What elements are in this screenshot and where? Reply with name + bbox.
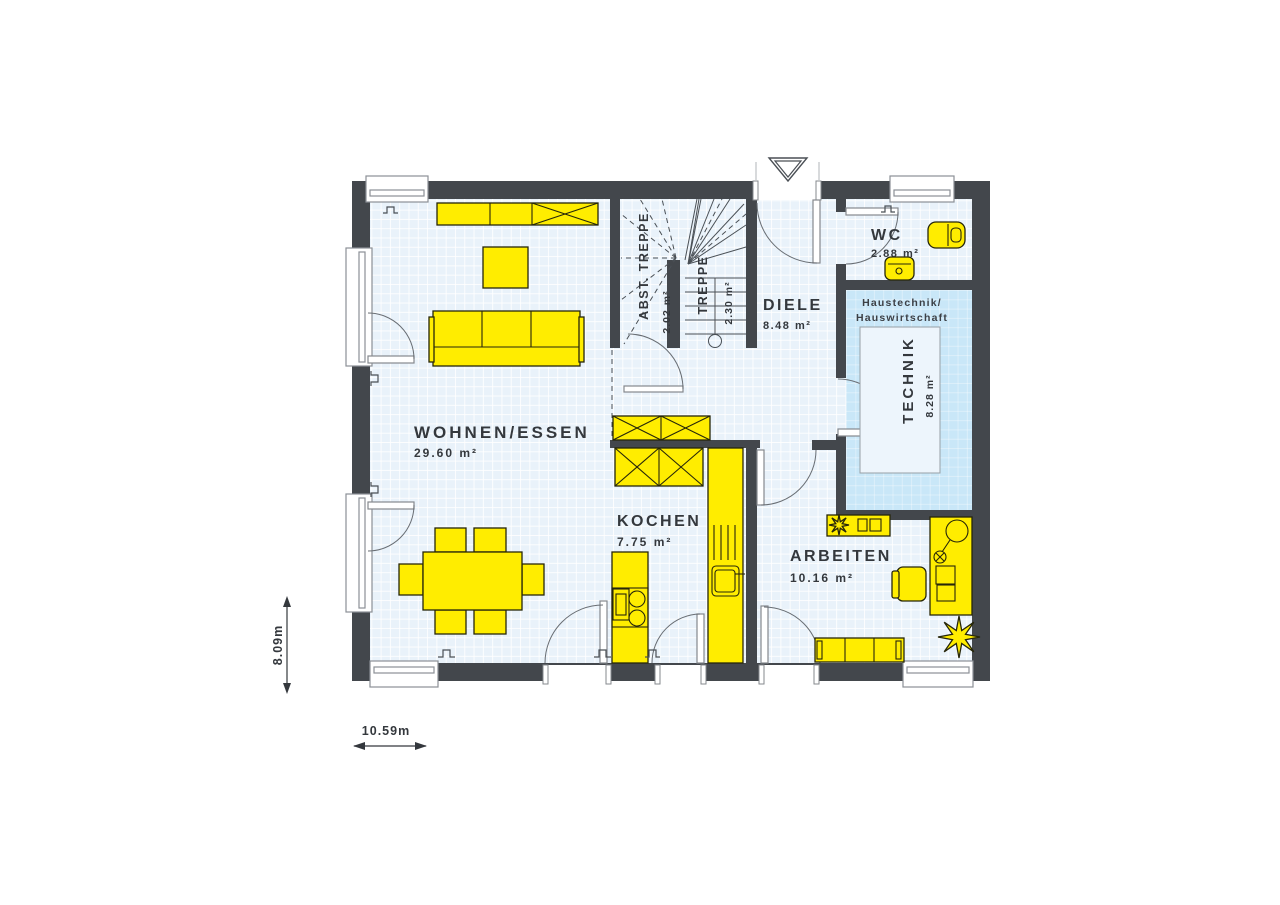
chair: [474, 610, 506, 634]
note-haustechnik-line1: Haustechnik/: [862, 297, 942, 309]
dimension-height-label: 8.09m: [271, 625, 285, 665]
chair: [474, 528, 506, 552]
kitchen-tall-cabinet: [615, 448, 703, 486]
desk: [930, 517, 972, 615]
desk-chair: [892, 567, 926, 601]
stairs-treppe-winders: [685, 199, 746, 348]
chair: [435, 528, 466, 552]
sideboard: [437, 203, 598, 225]
chair: [522, 564, 544, 595]
room-label-wc: WC: [871, 227, 903, 244]
room-area-abst-treppe: 2.02 m²: [661, 290, 673, 333]
plant-icon: [938, 616, 980, 658]
note-haustechnik-line2: Hauswirtschaft: [856, 312, 948, 324]
room-area-treppe: 2.30 m²: [723, 281, 735, 324]
room-label-kochen: KOCHEN: [617, 513, 701, 530]
window-bottom-right: [903, 661, 973, 687]
window-top-left: [366, 176, 428, 202]
room-area-technik: 8.28 m²: [924, 374, 936, 417]
room-label-diele: DIELE: [763, 297, 823, 314]
room-label-wohnen: WOHNEN/ESSEN: [414, 423, 590, 442]
room-area-diele: 8.48 m²: [763, 320, 811, 332]
chair: [435, 610, 466, 634]
toilet-icon: [928, 222, 965, 248]
room-area-wc: 2.88 m²: [871, 248, 919, 260]
dimension-width: 10.59m: [353, 724, 427, 750]
shelf: [827, 515, 890, 536]
room-label-abst-treppe: ABST. TREPPE: [637, 212, 651, 320]
window-wc: [890, 176, 954, 202]
room-area-wohnen: 29.60 m²: [414, 446, 478, 460]
room-label-technik: TECHNIK: [900, 336, 917, 424]
room-area-kochen: 7.75 m²: [617, 535, 672, 549]
sink-icon: [885, 257, 914, 280]
chair: [399, 564, 423, 595]
arbeiten-hall-door: [757, 450, 816, 505]
room-label-treppe: TREPPE: [696, 255, 710, 314]
terrace-door-kochen: [652, 614, 706, 685]
dimension-width-label: 10.59m: [362, 724, 410, 738]
furniture-arbeiten: [815, 515, 980, 662]
hall-cupboard: [613, 416, 710, 440]
sofa: [429, 311, 584, 366]
furniture-wohnen: [399, 203, 598, 634]
stove-unit: [612, 552, 648, 663]
window-bottom-left: [370, 661, 438, 687]
entrance-marker-icon: [769, 158, 807, 181]
dining-table: [423, 552, 522, 610]
terrace-door-wohnen: [543, 601, 611, 685]
arbeiten-sofa: [815, 638, 904, 662]
kitchen-counter: [708, 448, 745, 663]
room-label-arbeiten: ARBEITEN: [790, 548, 892, 565]
floorplan-drawing: 8.09m 10.59m WOHNEN/ESSEN 29.60 m² KOCHE…: [0, 0, 1280, 905]
french-window-left-upper: [346, 248, 414, 366]
room-area-arbeiten: 10.16 m²: [790, 571, 854, 585]
dimension-height: 8.09m: [271, 596, 291, 694]
floorplan-canvas: 8.09m 10.59m WOHNEN/ESSEN 29.60 m² KOCHE…: [0, 0, 1280, 905]
terrace-door-arbeiten: [759, 606, 820, 685]
dining-table-set: [399, 528, 544, 634]
coffee-table: [483, 247, 528, 288]
plant-icon: [829, 515, 849, 535]
